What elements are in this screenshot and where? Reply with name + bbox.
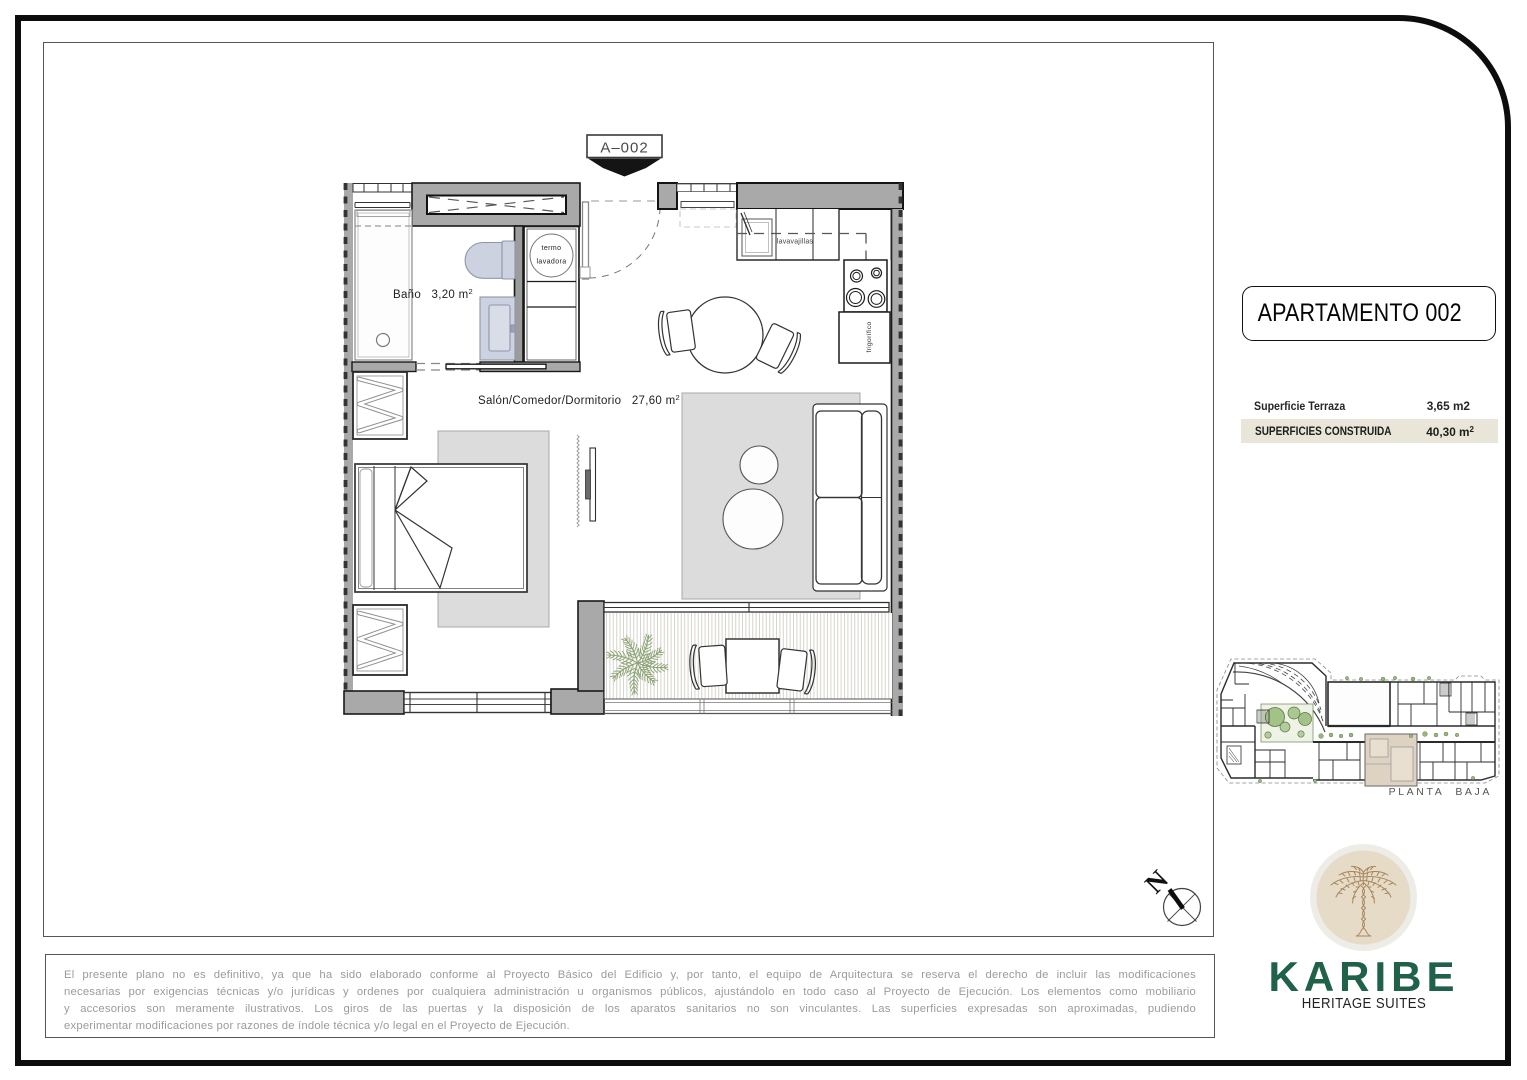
svg-text:termo: termo [542,245,562,252]
svg-text:lavavajillas: lavavajillas [777,239,814,246]
svg-text:lavadora: lavadora [536,259,566,266]
svg-text:Salón/Comedor/Dormitorio 27,: Salón/Comedor/Dormitorio 27,60 m2 [478,393,680,407]
svg-text:Baño 3,20 m2: Baño 3,20 m2 [393,287,473,301]
svg-text:frigorífico: frigorífico [866,321,873,352]
svg-text:A–002: A–002 [600,140,648,157]
